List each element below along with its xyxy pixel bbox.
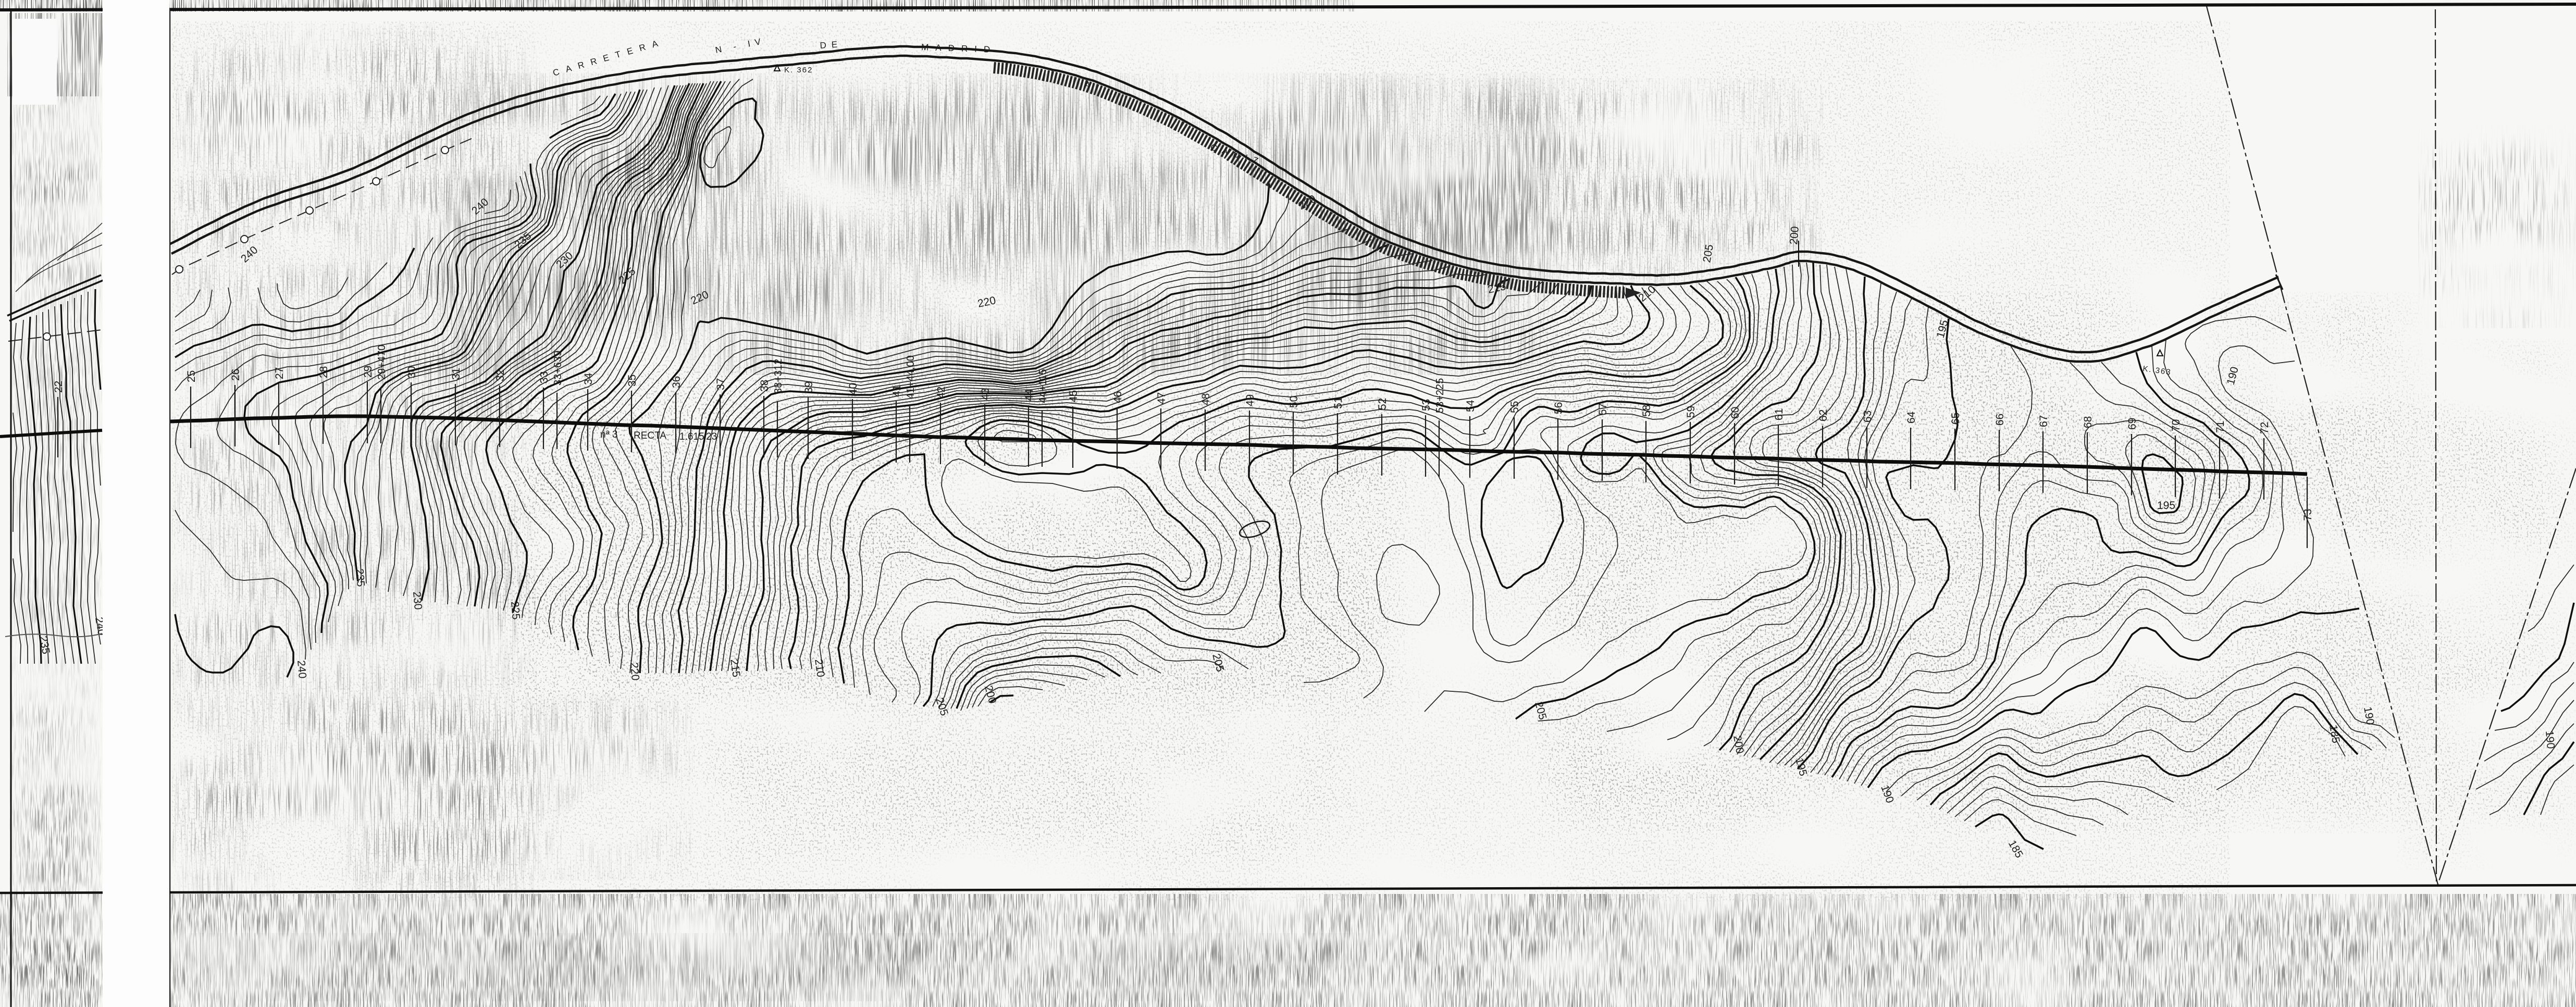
svg-text:210: 210: [812, 658, 827, 678]
svg-text:220: 220: [628, 662, 641, 681]
svg-text:29+470: 29+470: [376, 345, 388, 380]
svg-text:nª 3: nª 3: [600, 429, 617, 440]
svg-text:53+225: 53+225: [1434, 378, 1446, 413]
svg-text:32: 32: [494, 369, 506, 381]
svg-text:54: 54: [1465, 400, 1477, 412]
svg-text:34: 34: [583, 372, 595, 385]
svg-text:67: 67: [2038, 415, 2050, 427]
svg-text:43: 43: [980, 388, 992, 400]
svg-text:44: 44: [1023, 389, 1035, 401]
svg-text:63: 63: [1862, 411, 1874, 422]
svg-text:57: 57: [1597, 403, 1609, 415]
svg-text:41: 41: [891, 385, 903, 397]
svg-text:30: 30: [406, 366, 418, 378]
svg-text:230: 230: [411, 591, 424, 610]
svg-text:195: 195: [2157, 500, 2175, 512]
svg-text:35: 35: [626, 375, 638, 387]
svg-text:47: 47: [1156, 392, 1168, 404]
svg-text:49: 49: [1244, 394, 1256, 406]
svg-text:50: 50: [1288, 396, 1300, 408]
svg-text:58: 58: [1641, 405, 1653, 417]
svg-text:1.615′23: 1.615′23: [679, 431, 717, 442]
svg-text:45: 45: [1068, 390, 1080, 402]
svg-text:55: 55: [1509, 401, 1521, 413]
svg-text:31: 31: [450, 368, 462, 380]
svg-text:41+44,00: 41+44,00: [905, 355, 917, 399]
svg-text:200: 200: [1788, 226, 1801, 245]
svg-text:61: 61: [1773, 408, 1785, 420]
svg-text:53: 53: [1420, 399, 1432, 411]
svg-text:33: 33: [538, 371, 550, 383]
svg-text:RECTA: RECTA: [634, 430, 666, 441]
svg-text:27: 27: [274, 367, 286, 379]
svg-text:215: 215: [728, 658, 742, 678]
svg-text:29: 29: [362, 366, 374, 378]
svg-text:71: 71: [2214, 421, 2226, 433]
svg-text:39: 39: [803, 381, 815, 393]
svg-text:44+115: 44+115: [1037, 369, 1049, 403]
svg-text:62: 62: [1817, 409, 1829, 421]
svg-text:DE: DE: [820, 39, 843, 51]
svg-text:48: 48: [1200, 393, 1212, 405]
svg-text:42: 42: [935, 387, 947, 399]
svg-text:190: 190: [2543, 730, 2557, 749]
svg-text:22: 22: [53, 381, 65, 393]
svg-text:240: 240: [295, 660, 308, 679]
svg-text:59: 59: [1685, 406, 1697, 418]
svg-text:72: 72: [2259, 422, 2271, 434]
svg-text:38: 38: [759, 380, 771, 392]
svg-text:33+639: 33+639: [552, 351, 564, 386]
svg-text:K. 362: K. 362: [784, 66, 813, 74]
svg-text:56: 56: [1553, 402, 1565, 414]
svg-text:60: 60: [1729, 407, 1741, 419]
svg-text:36: 36: [671, 376, 683, 388]
svg-text:25: 25: [185, 370, 197, 382]
svg-text:51: 51: [1332, 397, 1344, 409]
svg-text:73: 73: [2302, 509, 2314, 521]
svg-text:70: 70: [2170, 419, 2182, 431]
svg-text:46: 46: [1112, 391, 1124, 403]
svg-text:68: 68: [2082, 416, 2094, 428]
svg-text:65: 65: [1950, 413, 1962, 425]
svg-text:26: 26: [230, 369, 242, 381]
svg-text:235: 235: [353, 568, 367, 587]
svg-text:40: 40: [847, 383, 859, 395]
svg-text:66: 66: [1994, 414, 2006, 426]
svg-text:37: 37: [715, 378, 727, 390]
svg-text:52: 52: [1377, 398, 1389, 410]
svg-text:69: 69: [2126, 418, 2138, 430]
svg-text:28: 28: [318, 366, 330, 378]
svg-text:38+312: 38+312: [773, 359, 784, 394]
svg-text:225: 225: [509, 601, 522, 620]
svg-text:64: 64: [1905, 411, 1917, 424]
